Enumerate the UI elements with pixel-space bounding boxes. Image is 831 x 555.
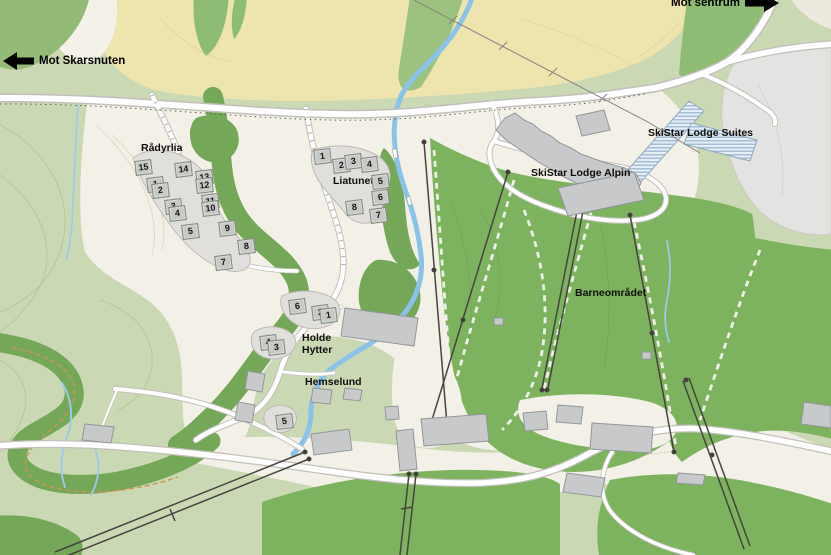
lot-liatunet-4[interactable]: 4: [360, 156, 379, 173]
lot-r-dyrlia-12[interactable]: 12: [195, 177, 214, 194]
map-canvas[interactable]: Mot Skarsnuten Mot sentrum RådyrliaLiatu…: [0, 0, 831, 555]
lot-liatunet-6[interactable]: 6: [371, 189, 390, 206]
lot-holde-hytter-6[interactable]: 6: [288, 298, 307, 315]
area-label-radyrlia: Rådyrlia: [141, 142, 182, 154]
lot-r-dyrlia-15[interactable]: 15: [134, 159, 153, 176]
area-label-skistar-lodge-suites: SkiStar Lodge Suites: [648, 127, 753, 139]
area-label-skistar-lodge-alpin: SkiStar Lodge Alpin: [531, 167, 630, 179]
area-label-holde-hytter-line2: Hytter: [302, 344, 332, 356]
area-label-liatunet: Liatunet: [333, 175, 374, 187]
lot-liatunet-5[interactable]: 5: [371, 173, 390, 190]
lot-hemselund-5[interactable]: 5: [275, 413, 294, 430]
lot-r-dyrlia-9[interactable]: 9: [218, 220, 237, 237]
sign-mot-sentrum: Mot sentrum: [671, 0, 779, 13]
lot-r-dyrlia-14[interactable]: 14: [174, 161, 193, 178]
right-arrow-icon: [745, 0, 779, 13]
lot-liatunet-8[interactable]: 8: [345, 199, 364, 216]
lot-liatunet-1[interactable]: 1: [313, 148, 332, 165]
lot-r-dyrlia-5[interactable]: 5: [181, 223, 200, 240]
lot-r-dyrlia-2[interactable]: 2: [151, 182, 170, 199]
lot-r-dyrlia-7[interactable]: 7: [214, 254, 233, 271]
area-label-barneomradet: Barneområdet: [575, 287, 646, 299]
lot-r-dyrlia-8[interactable]: 8: [237, 238, 256, 255]
sign-label: Mot Skarsnuten: [39, 55, 125, 67]
map-overlay: Mot Skarsnuten Mot sentrum RådyrliaLiatu…: [0, 0, 831, 555]
lot-liatunet-7[interactable]: 7: [369, 207, 388, 224]
lot-r-dyrlia-10[interactable]: 10: [201, 200, 220, 217]
lot-r-dyrlia-4[interactable]: 4: [168, 205, 187, 222]
lot-holde-hytter-1[interactable]: 1: [319, 307, 338, 324]
sign-mot-skarsnuten: Mot Skarsnuten: [3, 51, 125, 71]
lot-holde-hytter-3[interactable]: 3: [267, 339, 286, 356]
left-arrow-icon: [3, 51, 34, 71]
area-label-hemselund: Hemselund: [305, 376, 362, 388]
sign-label: Mot sentrum: [671, 0, 740, 9]
area-label-holde-hytter-line1: Holde: [302, 332, 331, 344]
